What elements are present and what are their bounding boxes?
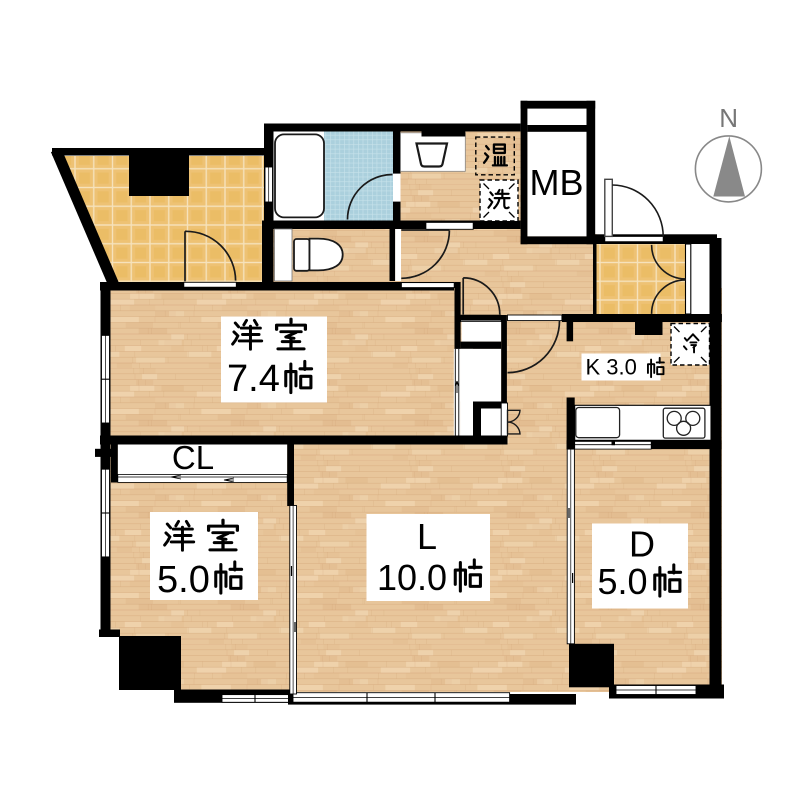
svg-text:K 3.0: K 3.0 <box>586 355 637 380</box>
svg-text:10.0: 10.0 <box>377 557 447 598</box>
svg-text:5.0: 5.0 <box>598 561 648 602</box>
svg-text:MB: MB <box>530 162 584 203</box>
svg-text:L: L <box>417 516 437 557</box>
svg-text:D: D <box>629 524 655 565</box>
svg-text:7.4: 7.4 <box>227 358 280 400</box>
svg-text:CL: CL <box>172 439 214 476</box>
svg-text:5.0: 5.0 <box>157 559 210 601</box>
svg-text:N: N <box>719 103 738 133</box>
